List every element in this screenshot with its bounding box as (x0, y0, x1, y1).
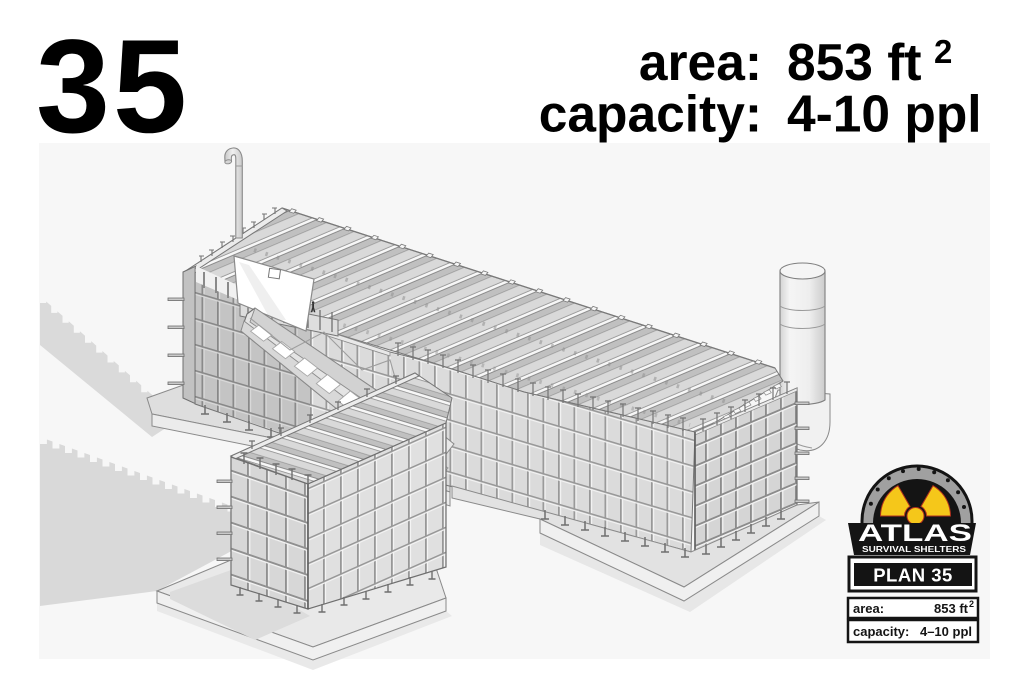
svg-text:853 ft: 853 ft (787, 33, 922, 91)
svg-text:35: 35 (36, 13, 190, 161)
svg-text:2: 2 (969, 599, 974, 609)
svg-text:capacity:: capacity: (539, 85, 762, 143)
svg-text:capacity:: capacity: (853, 624, 909, 639)
svg-text:area:: area: (853, 601, 884, 616)
svg-text:4-10 ppl: 4-10 ppl (787, 85, 982, 143)
svg-text:PLAN 35: PLAN 35 (873, 565, 953, 586)
svg-text:2: 2 (934, 33, 952, 70)
svg-text:4–10 ppl: 4–10 ppl (920, 624, 972, 639)
svg-text:area:: area: (639, 33, 762, 91)
svg-text:SURVIVAL SHELTERS: SURVIVAL SHELTERS (862, 545, 967, 554)
svg-text:ATLAS: ATLAS (858, 520, 972, 547)
svg-text:853 ft: 853 ft (934, 601, 969, 616)
